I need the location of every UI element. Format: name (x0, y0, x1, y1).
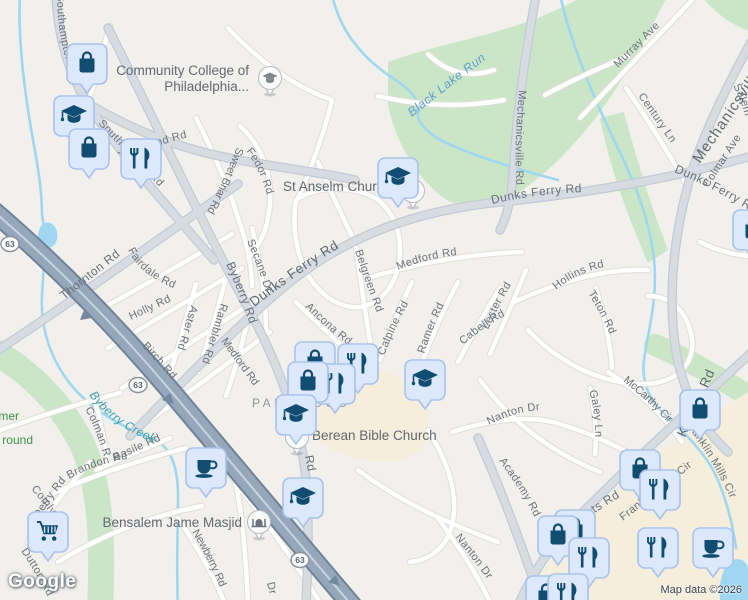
poi-label-community-college-line2: Philadelphia... (164, 79, 249, 94)
road-label-aster: Aster Rd (175, 304, 200, 352)
route-shield-63: 63 (129, 378, 147, 393)
google-logo[interactable]: Google (8, 571, 76, 593)
poi-marker-shopping-bag[interactable] (69, 129, 109, 178)
poi-label-berean-bible-church: Berean Bible Church (312, 428, 437, 443)
poi-marker-coffee-cup[interactable] (186, 448, 226, 497)
svg-text:63: 63 (133, 380, 143, 390)
poi-label-community-college-line1: Community College of (116, 63, 249, 78)
road-label-dr-fragment: Dr (264, 581, 279, 596)
poi-label-st-anselm-church: St Anselm Church (283, 179, 391, 194)
road-label-galey: Galey Ln (586, 389, 604, 438)
map-viewport[interactable]: 63 63 63 Southampton Rd Southampton Rd T… (0, 0, 748, 600)
map-canvas[interactable]: 63 63 63 Southampton Rd Southampton Rd T… (0, 0, 748, 600)
mosque-circle-pin[interactable] (248, 511, 271, 541)
park-label-fragment-2: round (2, 433, 33, 447)
road-label-nanton-1: Nanton Dr (485, 401, 540, 427)
route-shield-63: 63 (291, 553, 309, 568)
poi-marker-restaurant[interactable] (548, 574, 588, 600)
road-label-teton: Teton Rd (585, 288, 618, 336)
svg-text:63: 63 (295, 555, 305, 565)
poi-marker-graduation-cap[interactable] (276, 395, 316, 444)
poi-label-bensalem-jame-masjid: Bensalem Jame Masjid (102, 515, 242, 530)
road-label-newberry: Newberry Rd (189, 527, 228, 588)
route-shield-63: 63 (1, 237, 19, 252)
road-label-holly: Holly Rd (127, 293, 173, 323)
map-attribution: Map data ©2026 (661, 584, 743, 596)
poi-marker-shopping-cart[interactable] (28, 512, 68, 561)
school-circle-pin[interactable] (259, 67, 282, 97)
park-label-fragment-1: mer (0, 409, 19, 423)
svg-text:63: 63 (5, 239, 15, 249)
